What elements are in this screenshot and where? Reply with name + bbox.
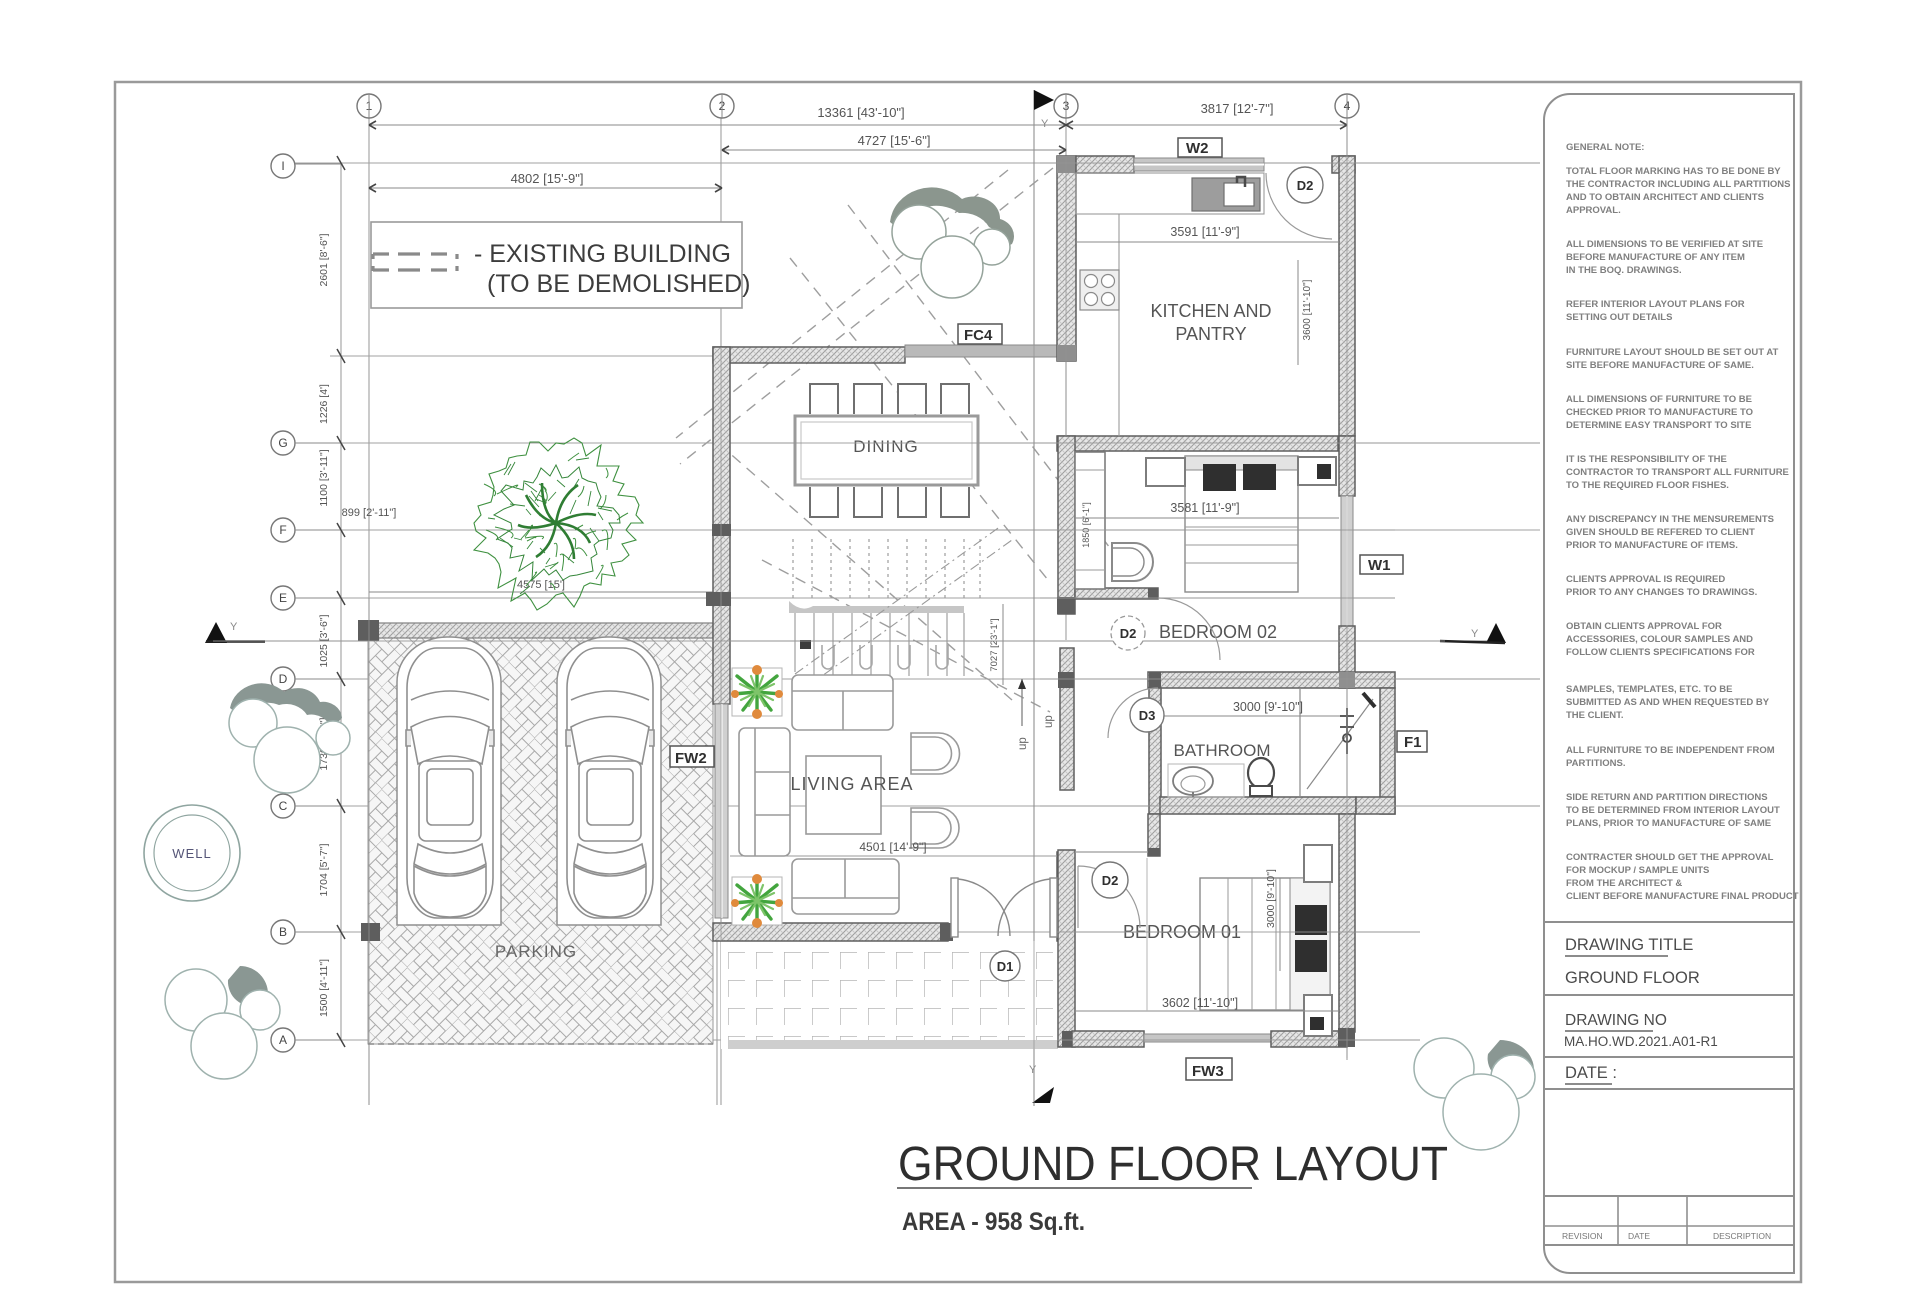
svg-text:Y: Y: [1029, 1064, 1037, 1076]
svg-text:DATE :: DATE :: [1565, 1064, 1617, 1082]
svg-text:W2: W2: [1186, 140, 1209, 157]
svg-text:F: F: [279, 523, 286, 537]
svg-text:3600 [11'-10"]: 3600 [11'-10"]: [1302, 279, 1313, 340]
svg-text:1850 [6'-1"]: 1850 [6'-1"]: [1081, 502, 1091, 547]
svg-text:DRAWING NO: DRAWING NO: [1565, 1012, 1667, 1029]
svg-text:E: E: [279, 591, 287, 605]
svg-text:D1: D1: [997, 959, 1014, 974]
svg-text:PLANS, PRIOR TO MANUFACTURE OF: PLANS, PRIOR TO MANUFACTURE OF SAME: [1566, 818, 1771, 829]
svg-text:899 [2'-11"]: 899 [2'-11"]: [342, 507, 397, 519]
svg-text:3581 [11'-9"]: 3581 [11'-9"]: [1170, 501, 1239, 515]
svg-text:BATHROOM: BATHROOM: [1174, 741, 1271, 760]
svg-text:7027 [23'-1"]: 7027 [23'-1"]: [989, 618, 1000, 671]
svg-text:1704 [5'-7"]: 1704 [5'-7"]: [318, 843, 330, 896]
svg-text:up: up: [1043, 715, 1055, 728]
svg-text:CONTRACTER SHOULD GET THE APPR: CONTRACTER SHOULD GET THE APPROVAL: [1566, 852, 1774, 863]
svg-text:FOR MOCKUP / SAMPLE UNITS: FOR MOCKUP / SAMPLE UNITS: [1566, 865, 1709, 876]
svg-text:IN THE BOQ. DRAWINGS.: IN THE BOQ. DRAWINGS.: [1566, 265, 1682, 276]
svg-text:SITE BEFORE MANUFACTURE OF SAM: SITE BEFORE MANUFACTURE OF SAME.: [1566, 360, 1754, 371]
svg-text:CLIENTS APPROVAL IS REQUIRED: CLIENTS APPROVAL IS REQUIRED: [1566, 574, 1725, 585]
svg-text:DINING: DINING: [853, 437, 919, 456]
svg-text:PARKING: PARKING: [495, 942, 577, 961]
svg-text:PRIOR TO ANY CHANGES TO DRAWIN: PRIOR TO ANY CHANGES TO DRAWINGS.: [1566, 587, 1757, 598]
svg-text:CONTRACTOR TO TRANSPORT ALL FU: CONTRACTOR TO TRANSPORT ALL FURNITURE: [1566, 467, 1789, 478]
svg-text:I: I: [281, 159, 284, 173]
svg-text:D2: D2: [1102, 873, 1119, 888]
svg-text:AND TO OBTAIN ARCHITECT AND CL: AND TO OBTAIN ARCHITECT AND CLIENTS: [1566, 192, 1764, 203]
svg-text:A: A: [279, 1033, 287, 1047]
svg-text:ALL DIMENSIONS TO BE VERIFIED: ALL DIMENSIONS TO BE VERIFIED AT SITE: [1566, 239, 1763, 250]
svg-text:SAMPLES, TEMPLATES, ETC. TO BE: SAMPLES, TEMPLATES, ETC. TO BE: [1566, 684, 1732, 695]
svg-text:13361 [43'-10"]: 13361 [43'-10"]: [817, 105, 904, 120]
svg-text:GROUND FLOOR: GROUND FLOOR: [1565, 969, 1700, 987]
svg-text:(TO BE DEMOLISHED): (TO BE DEMOLISHED): [487, 270, 750, 298]
svg-text:1500 [4'-11"]: 1500 [4'-11"]: [318, 959, 330, 1017]
svg-text:Y: Y: [1471, 628, 1479, 640]
svg-text:up: up: [1017, 737, 1029, 750]
svg-text:OBTAIN CLIENTS APPROVAL FOR: OBTAIN CLIENTS APPROVAL FOR: [1566, 621, 1722, 632]
svg-text:GENERAL NOTE:: GENERAL NOTE:: [1566, 142, 1644, 153]
svg-text:4802 [15'-9"]: 4802 [15'-9"]: [511, 171, 584, 186]
svg-text:CLIENT BEFORE MANUFACTURE FINA: CLIENT BEFORE MANUFACTURE FINAL PRODUCT: [1566, 891, 1799, 902]
svg-text:WELL: WELL: [172, 846, 211, 861]
svg-text:B: B: [279, 925, 287, 939]
svg-text:DESCRIPTION: DESCRIPTION: [1713, 1231, 1771, 1241]
svg-text:THE CONTRACTOR INCLUDING ALL P: THE CONTRACTOR INCLUDING ALL PARTITIONS: [1566, 179, 1790, 190]
svg-text:TO THE REQUIRED FLOOR FISHES.: TO THE REQUIRED FLOOR FISHES.: [1566, 480, 1729, 491]
svg-text:FW2: FW2: [675, 750, 707, 767]
svg-text:TO BE DETERMINED FROM INTERIOR: TO BE DETERMINED FROM INTERIOR LAYOUT: [1566, 805, 1780, 816]
svg-text:3000 [9'-10"]: 3000 [9'-10"]: [1233, 700, 1303, 714]
svg-text:FC4: FC4: [964, 327, 993, 344]
svg-text:BEDROOM 02: BEDROOM 02: [1159, 622, 1277, 642]
svg-text:GROUND FLOOR LAYOUT: GROUND FLOOR LAYOUT: [898, 1138, 1448, 1191]
svg-text:D: D: [279, 672, 288, 686]
svg-text:1226 [4']: 1226 [4']: [318, 384, 330, 424]
svg-text:KITCHEN AND: KITCHEN AND: [1150, 301, 1271, 321]
svg-text:4727 [15'-6"]: 4727 [15'-6"]: [858, 133, 931, 148]
svg-text:PARTITIONS.: PARTITIONS.: [1566, 758, 1625, 769]
svg-text:4501 [14'-9"]: 4501 [14'-9"]: [859, 840, 926, 854]
svg-text:REVISION: REVISION: [1562, 1231, 1603, 1241]
svg-text:4575 [15']: 4575 [15']: [517, 579, 565, 591]
svg-text:F1: F1: [1404, 734, 1422, 751]
svg-text:DATE: DATE: [1628, 1231, 1650, 1241]
svg-text:ACCESSORIES, COLOUR SAMPLES AN: ACCESSORIES, COLOUR SAMPLES AND: [1566, 634, 1753, 645]
svg-text:SETTING OUT DETAILS: SETTING OUT DETAILS: [1566, 312, 1672, 323]
svg-text:SIDE RETURN AND PARTITION DIRE: SIDE RETURN AND PARTITION DIRECTIONS: [1566, 792, 1768, 803]
svg-text:BEFORE MANUFACTURE OF ANY ITEM: BEFORE MANUFACTURE OF ANY ITEM: [1566, 252, 1745, 263]
svg-text:ANY DISCREPANCY IN THE MENSURE: ANY DISCREPANCY IN THE MENSUREMENTS: [1566, 514, 1774, 525]
svg-text:DETERMINE EASY TRANSPORT TO SI: DETERMINE EASY TRANSPORT TO SITE: [1566, 420, 1751, 431]
svg-text:1100 [3'-11"]: 1100 [3'-11"]: [318, 449, 330, 506]
svg-text:D3: D3: [1139, 708, 1156, 723]
svg-text:3602 [11'-10"]: 3602 [11'-10"]: [1162, 996, 1238, 1010]
svg-text:PANTRY: PANTRY: [1175, 324, 1246, 344]
svg-text:D2: D2: [1297, 178, 1314, 193]
svg-text:MA.HO.WD.2021.A01-R1: MA.HO.WD.2021.A01-R1: [1564, 1034, 1718, 1049]
svg-text:ALL FURNITURE TO BE INDEPENDEN: ALL FURNITURE TO BE INDEPENDENT FROM: [1566, 745, 1775, 756]
svg-text:3591 [11'-9"]: 3591 [11'-9"]: [1170, 225, 1239, 239]
svg-text:LIVING AREA: LIVING AREA: [790, 774, 913, 794]
svg-text:FURNITURE LAYOUT SHOULD BE SET: FURNITURE LAYOUT SHOULD BE SET OUT AT: [1566, 347, 1779, 358]
svg-text:FOLLOW CLIENTS SPECIFICATIONS: FOLLOW CLIENTS SPECIFICATIONS FOR: [1566, 647, 1755, 658]
svg-text:IT IS THE RESPONSIBILITY OF TH: IT IS THE RESPONSIBILITY OF THE: [1566, 454, 1727, 465]
svg-text:3817 [12'-7"]: 3817 [12'-7"]: [1201, 101, 1274, 116]
svg-text:THE CLIENT.: THE CLIENT.: [1566, 710, 1624, 721]
svg-text:PRIOR TO MANUFACTURE OF ITEMS.: PRIOR TO MANUFACTURE OF ITEMS.: [1566, 540, 1738, 551]
svg-text:Y: Y: [1041, 118, 1049, 130]
svg-text:- EXISTING BUILDING: - EXISTING BUILDING: [474, 240, 731, 268]
svg-text:C: C: [279, 799, 288, 813]
svg-text:D2: D2: [1120, 626, 1137, 641]
svg-text:G: G: [278, 436, 287, 450]
svg-text:FROM THE ARCHITECT &: FROM THE ARCHITECT &: [1566, 878, 1682, 889]
svg-text:W1: W1: [1368, 557, 1391, 574]
svg-text:REFER INTERIOR LAYOUT PLANS FO: REFER INTERIOR LAYOUT PLANS FOR: [1566, 299, 1745, 310]
svg-text:2601 [8'-6"]: 2601 [8'-6"]: [318, 233, 330, 286]
svg-text:AREA - 958 Sq.ft.: AREA - 958 Sq.ft.: [902, 1208, 1085, 1236]
svg-text:3000 [9'-10"]: 3000 [9'-10"]: [1265, 869, 1277, 928]
svg-text:GIVEN SHOULD BE REFERED TO CLI: GIVEN SHOULD BE REFERED TO CLIENT: [1566, 527, 1755, 538]
svg-text:TOTAL FLOOR MARKING HAS TO BE: TOTAL FLOOR MARKING HAS TO BE DONE BY: [1566, 166, 1781, 177]
svg-text:CHECKED PRIOR TO MANUFACTURE T: CHECKED PRIOR TO MANUFACTURE TO: [1566, 407, 1753, 418]
svg-text:Y: Y: [230, 621, 238, 633]
svg-text:SUBMITTED AS AND WHEN REQUESTE: SUBMITTED AS AND WHEN REQUESTED BY: [1566, 697, 1770, 708]
svg-text:DRAWING TITLE: DRAWING TITLE: [1565, 936, 1693, 954]
svg-text:FW3: FW3: [1192, 1063, 1224, 1080]
svg-text:ALL DIMENSIONS OF FURNITURE TO: ALL DIMENSIONS OF FURNITURE TO BE: [1566, 394, 1752, 405]
svg-text:APPROVAL.: APPROVAL.: [1566, 205, 1621, 216]
